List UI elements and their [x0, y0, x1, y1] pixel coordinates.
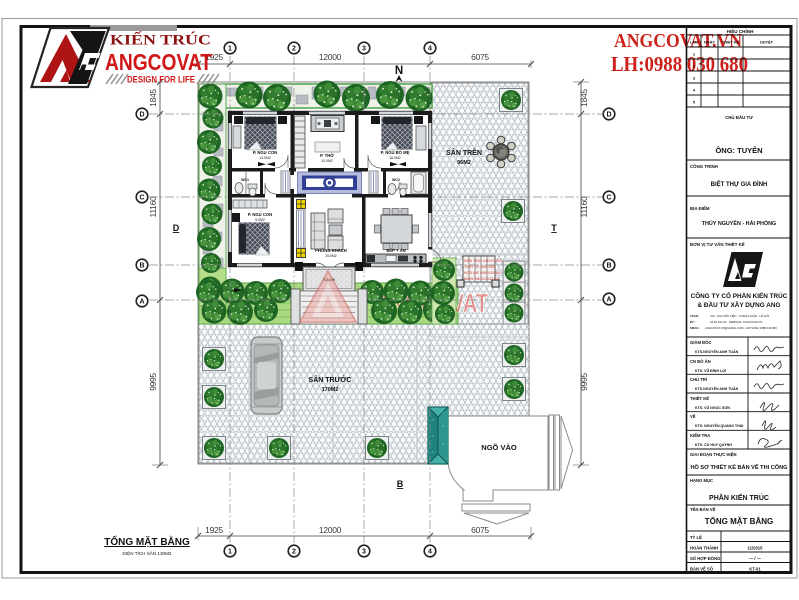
svg-text:LẦN: LẦN: [690, 41, 698, 45]
svg-text:LH:0988 030 680: LH:0988 030 680: [611, 52, 748, 76]
svg-text:GIÁM ĐỐC: GIÁM ĐỐC: [690, 340, 711, 345]
svg-text:A: A: [139, 299, 144, 306]
svg-text:KTS. VŨ ĐÌNH LỢI: KTS. VŨ ĐÌNH LỢI: [695, 368, 726, 373]
svg-text:THỦY NGUYÊN - HẢI PHÒNG: THỦY NGUYÊN - HẢI PHÒNG: [702, 219, 776, 227]
svg-text:CHỦ ĐẦU TƯ: CHỦ ĐẦU TƯ: [725, 115, 753, 120]
svg-text:DESIGN FOR LIFE: DESIGN FOR LIFE: [127, 75, 195, 86]
svg-text:1: 1: [228, 46, 232, 53]
svg-text:12000: 12000: [319, 52, 342, 62]
svg-text:10.0M2: 10.0M2: [321, 159, 332, 163]
svg-text:1: 1: [228, 549, 232, 556]
svg-text:EMAIL:: EMAIL:: [690, 326, 700, 330]
svg-text:C: C: [139, 195, 144, 202]
svg-text:P. NGỦ BỐ MẸ: P. NGỦ BỐ MẸ: [381, 150, 410, 155]
svg-text:BIỆT THỰ GIA ĐÌNH: BIỆT THỰ GIA ĐÌNH: [711, 180, 768, 188]
svg-text:D: D: [139, 112, 144, 119]
svg-text:11/2015: 11/2015: [748, 546, 764, 551]
svg-text:HOÀN THÀNH: HOÀN THÀNH: [690, 546, 718, 551]
svg-text:2: 2: [292, 549, 296, 556]
svg-text:PHÒNG KHÁCH: PHÒNG KHÁCH: [315, 248, 347, 253]
svg-text:ĐT :: ĐT :: [690, 320, 696, 324]
svg-text:VẼ: VẼ: [690, 414, 696, 419]
svg-text:ĐƠN VỊ TƯ VẤN THIẾT KẾ: ĐƠN VỊ TƯ VẤN THIẾT KẾ: [690, 242, 745, 247]
svg-text:3: 3: [362, 549, 366, 556]
svg-text:1845: 1845: [148, 89, 158, 107]
svg-text:9.0M2: 9.0M2: [255, 218, 265, 222]
svg-text:— / —: — / —: [749, 556, 762, 561]
svg-text:KTS. VŨ NGỌC SƠN: KTS. VŨ NGỌC SƠN: [695, 405, 730, 410]
svg-text:NGÕ VÀO: NGÕ VÀO: [481, 443, 517, 452]
svg-text:B: B: [139, 263, 144, 270]
svg-text:P. THỜ: P. THỜ: [320, 153, 334, 158]
svg-text:THIẾT KẾ: THIẾT KẾ: [722, 40, 740, 45]
svg-text:BẢN VẼ SỐ: BẢN VẼ SỐ: [690, 567, 714, 572]
svg-text:WC2: WC2: [392, 178, 400, 182]
svg-text:T: T: [551, 223, 557, 233]
svg-text:ĐỊA ĐIỂM: ĐỊA ĐIỂM: [690, 206, 710, 211]
svg-text:P. NGỦ CON: P. NGỦ CON: [248, 212, 272, 217]
svg-text:KTS.NGUYỄN ANH TUẤN: KTS.NGUYỄN ANH TUẤN: [695, 349, 739, 354]
svg-text:4: 4: [428, 549, 432, 556]
svg-text:THIẾT KẾ NHÀ ĐẸP: THIẾT KẾ NHÀ ĐẸP: [464, 264, 496, 269]
svg-text:B: B: [606, 263, 611, 270]
svg-text:214 - NGUYỄN XIỂN - THANH XUÂN: 214 - NGUYỄN XIỂN - THANH XUÂN - HÀ NỘI: [710, 313, 769, 318]
svg-text:ANGCOVAT.VN@GMAIL.COM - HOTLIN: ANGCOVAT.VN@GMAIL.COM - HOTLINE: 0988 03…: [705, 326, 777, 330]
svg-text:4: 4: [428, 46, 432, 53]
svg-text:THIẾT KẾ: THIẾT KẾ: [690, 396, 709, 401]
svg-text:WWW.ANGCOVAT.VN: WWW.ANGCOVAT.VN: [464, 277, 499, 281]
svg-text:KTS.NGUYỄN ANH TUẤN: KTS.NGUYỄN ANH TUẤN: [695, 386, 739, 391]
svg-text:CN ĐỒ ÁN: CN ĐỒ ÁN: [690, 359, 711, 364]
svg-text:SÂN TRƯỚC: SÂN TRƯỚC: [309, 375, 352, 384]
svg-text:3: 3: [362, 46, 366, 53]
svg-text:04.66.222.04 - WEBSITE: ANGCOV: 04.66.222.04 - WEBSITE: ANGCOVAT.VN: [710, 320, 762, 324]
svg-text:96M2: 96M2: [457, 160, 471, 166]
svg-text:VPGD:: VPGD:: [690, 314, 699, 318]
svg-text:C: C: [606, 195, 611, 202]
svg-text:6075: 6075: [471, 525, 489, 535]
svg-text:A: A: [606, 297, 611, 304]
svg-text:6075: 6075: [471, 52, 489, 62]
svg-text:NGÀY: NGÀY: [704, 40, 715, 45]
svg-text:1845: 1845: [579, 89, 589, 107]
svg-text:KTS. CÙ HUY QUỲNH: KTS. CÙ HUY QUỲNH: [695, 442, 732, 447]
svg-text:KTS. NGUYỄN QUANG THÁI: KTS. NGUYỄN QUANG THÁI: [695, 423, 743, 428]
svg-text:16.0M2: 16.0M2: [389, 156, 400, 160]
svg-text:DIỆN TÍCH SÂN 130M2: DIỆN TÍCH SÂN 130M2: [123, 549, 172, 556]
svg-text:KIẾN TRÚC: KIẾN TRÚC: [110, 32, 211, 49]
svg-text:14.0M2: 14.0M2: [259, 156, 270, 160]
svg-text:CHỦ TRÌ: CHỦ TRÌ: [690, 377, 707, 382]
svg-text:25.0M2: 25.0M2: [325, 254, 336, 258]
svg-text:TỔNG MẶT BẰNG: TỔNG MẶT BẰNG: [104, 535, 190, 548]
svg-text:WC1: WC1: [241, 178, 249, 182]
svg-text:TÊN BẢN VẼ: TÊN BẢN VẼ: [690, 507, 716, 512]
svg-text:170M2: 170M2: [322, 387, 339, 393]
svg-text:BẾP + ĂN: BẾP + ĂN: [386, 248, 405, 253]
svg-text:GIAI ĐOẠN THỰC HIỆN: GIAI ĐOẠN THỰC HIỆN: [690, 452, 737, 457]
svg-text:D: D: [173, 223, 180, 233]
svg-text:2: 2: [292, 46, 296, 53]
svg-text:ÔNG: TUYÊN: ÔNG: TUYÊN: [715, 146, 762, 155]
svg-text:B: B: [397, 479, 404, 489]
svg-text:DUYỆT: DUYỆT: [760, 40, 774, 45]
svg-text:TỔNG MẶT BẰNG: TỔNG MẶT BẰNG: [705, 517, 773, 526]
svg-text:KT-01: KT-01: [749, 567, 761, 572]
svg-text:P. NGỦ CON: P. NGỦ CON: [253, 150, 277, 155]
svg-text:ANGCOVAT: ANGCOVAT: [105, 49, 213, 75]
svg-text:1925: 1925: [205, 525, 223, 535]
svg-text:9995: 9995: [579, 373, 589, 391]
svg-text:KIỂM TRA: KIỂM TRA: [690, 433, 710, 438]
svg-text:TỶ LỆ: TỶ LỆ: [690, 535, 702, 540]
svg-text:SÂN TRÊN: SÂN TRÊN: [446, 148, 482, 157]
svg-text:CÔNG TRÌNH: CÔNG TRÌNH: [690, 164, 718, 169]
svg-text:D: D: [606, 112, 611, 119]
svg-text:12000: 12000: [319, 525, 342, 535]
svg-text:HOTLINE 0988 030 680: HOTLINE 0988 030 680: [464, 271, 501, 275]
svg-text:11160: 11160: [579, 196, 589, 217]
svg-text:HỒ SƠ THIẾT KẾ BẢN VẼ THI CÔNG: HỒ SƠ THIẾT KẾ BẢN VẼ THI CÔNG: [690, 463, 787, 471]
svg-text:KIẺN TRÚC ANGCOVAT: KIẺN TRÚC ANGCOVAT: [464, 258, 503, 263]
svg-text:HẠNG MỤC: HẠNG MỤC: [690, 478, 713, 483]
svg-text:11160: 11160: [148, 196, 158, 217]
svg-text:9995: 9995: [148, 373, 158, 391]
svg-text:SỐ HỢP ĐỒNG: SỐ HỢP ĐỒNG: [690, 556, 720, 561]
svg-text:HIỆU CHỈNH: HIỆU CHỈNH: [727, 27, 754, 34]
